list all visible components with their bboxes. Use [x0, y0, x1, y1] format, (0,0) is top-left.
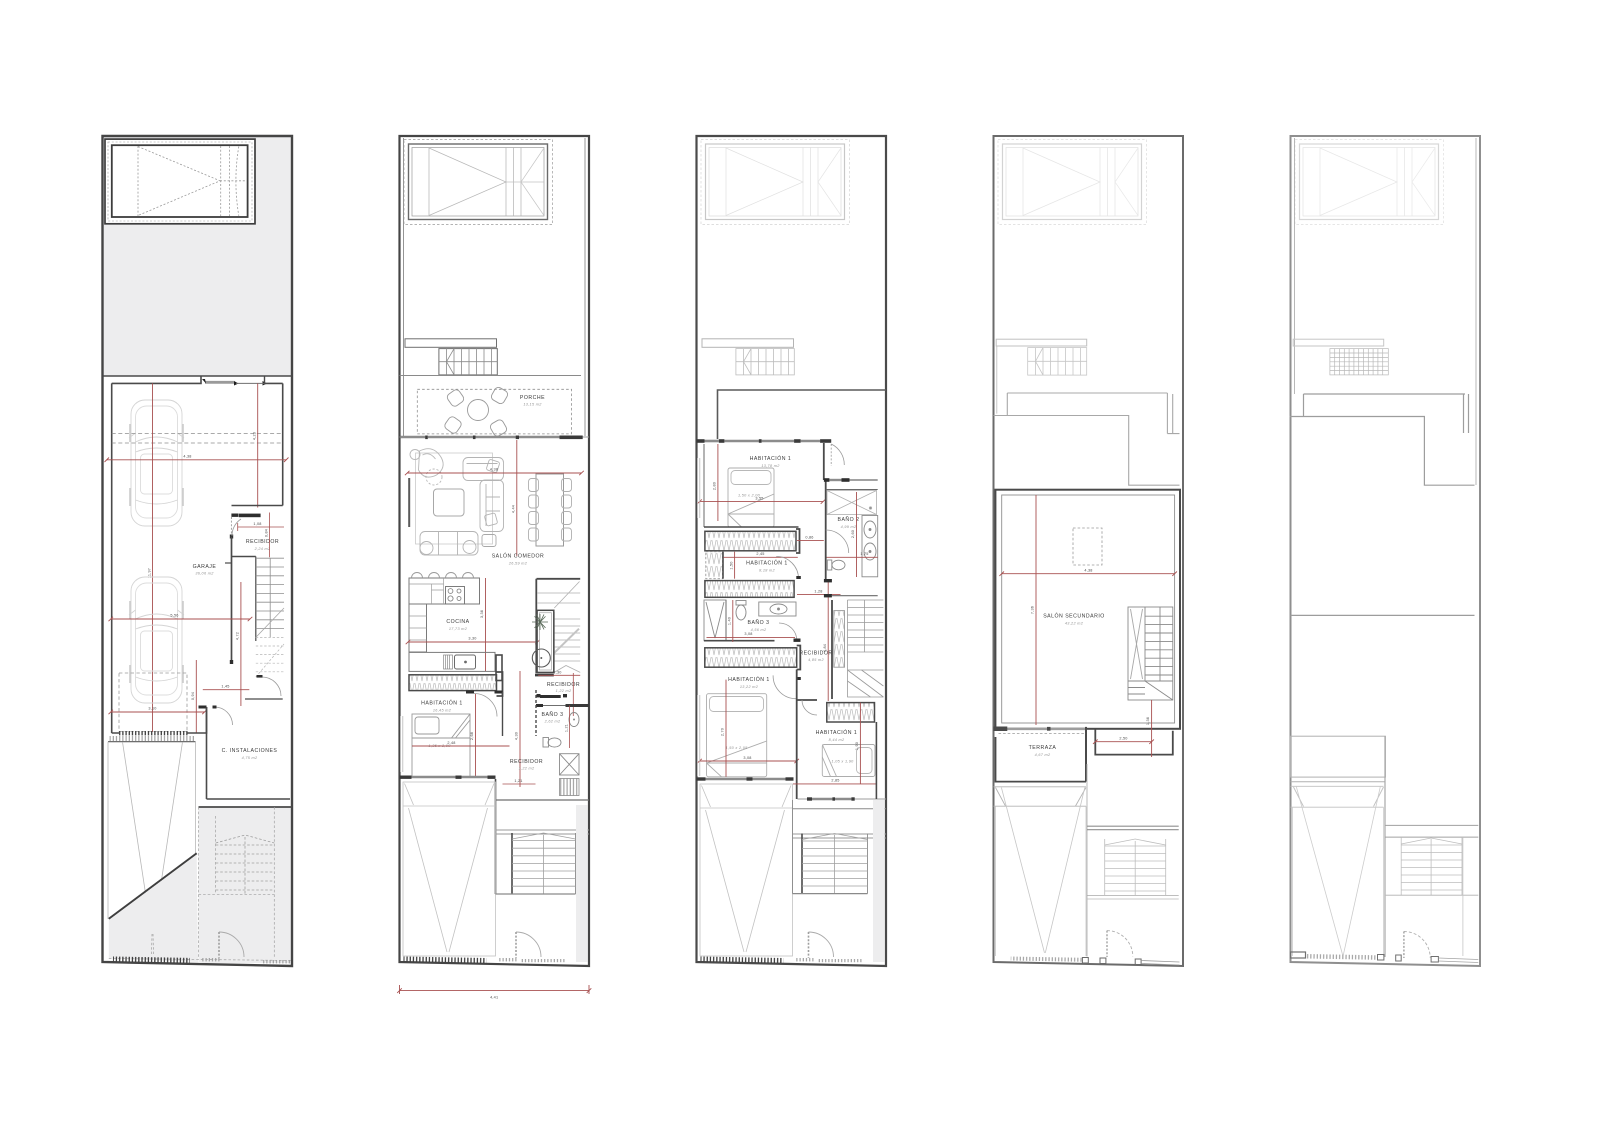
- svg-text:RECIBIDOR: RECIBIDOR: [510, 759, 543, 765]
- svg-text:4,30: 4,30: [515, 732, 519, 740]
- svg-text:2,24 m2: 2,24 m2: [254, 547, 271, 551]
- svg-text:1,40: 1,40: [727, 617, 731, 625]
- svg-text:HABITACIÓN 1: HABITACIÓN 1: [728, 676, 770, 683]
- svg-text:1,28: 1,28: [814, 589, 822, 593]
- svg-text:2,45: 2,45: [756, 552, 764, 556]
- svg-text:13,15 m2: 13,15 m2: [523, 403, 542, 407]
- svg-text:2,85: 2,85: [831, 779, 839, 783]
- svg-text:26,59 m2: 26,59 m2: [508, 562, 528, 566]
- svg-text:RECIBIDOR: RECIBIDOR: [246, 539, 279, 545]
- svg-text:43,22 m2: 43,22 m2: [1065, 622, 1084, 626]
- svg-text:4,44: 4,44: [511, 505, 515, 513]
- svg-text:3,30: 3,30: [468, 637, 476, 641]
- svg-text:2,48: 2,48: [447, 741, 455, 745]
- svg-text:PORCHE: PORCHE: [520, 395, 545, 401]
- svg-text:5,56: 5,56: [170, 614, 178, 618]
- svg-text:SALÓN COMEDOR: SALÓN COMEDOR: [492, 553, 545, 560]
- svg-text:4,67 m2: 4,67 m2: [1035, 753, 1051, 757]
- svg-text:1,05 x 1,90: 1,05 x 1,90: [831, 760, 854, 764]
- svg-text:HABITACIÓN 1: HABITACIÓN 1: [816, 729, 858, 736]
- svg-text:2,70: 2,70: [721, 728, 725, 736]
- svg-text:BAÑO 3: BAÑO 3: [747, 619, 769, 626]
- svg-text:1,08: 1,08: [253, 522, 261, 526]
- svg-text:COCINA: COCINA: [446, 619, 469, 625]
- svg-text:1,36: 1,36: [1146, 717, 1150, 725]
- svg-text:4,56 m2: 4,56 m2: [751, 628, 767, 632]
- svg-text:2,68: 2,68: [470, 732, 474, 740]
- svg-text:4,99 m2: 4,99 m2: [841, 525, 857, 529]
- svg-text:4,84: 4,84: [823, 644, 827, 652]
- svg-text:1,22 m2: 1,22 m2: [556, 689, 572, 693]
- svg-text:1,21: 1,21: [565, 724, 569, 732]
- svg-text:HABITACIÓN 1: HABITACIÓN 1: [421, 700, 463, 707]
- svg-text:4,41: 4,41: [490, 996, 498, 1000]
- svg-text:3,08: 3,08: [744, 632, 752, 636]
- svg-text:8,44 m2: 8,44 m2: [829, 738, 845, 742]
- svg-text:7,36: 7,36: [1031, 606, 1035, 614]
- svg-text:2,62 m2: 2,62 m2: [544, 720, 561, 724]
- svg-text:GARAJE: GARAJE: [193, 564, 217, 570]
- svg-text:1,30: 1,30: [553, 671, 561, 675]
- svg-text:0,84: 0,84: [264, 529, 268, 537]
- svg-text:4,38: 4,38: [183, 455, 191, 459]
- svg-text:4,75 m2: 4,75 m2: [242, 756, 258, 760]
- svg-text:3,36: 3,36: [480, 610, 484, 618]
- svg-text:1,90: 1,90: [855, 742, 859, 750]
- svg-text:0,86: 0,86: [805, 535, 813, 539]
- svg-text:C. INSTALACIONES: C. INSTALACIONES: [222, 748, 278, 754]
- svg-text:1,22 m2: 1,22 m2: [519, 767, 535, 771]
- svg-text:3,08: 3,08: [743, 756, 751, 760]
- svg-text:2,50: 2,50: [1119, 737, 1127, 741]
- svg-text:2,60: 2,60: [851, 530, 855, 538]
- svg-text:BAÑO 3: BAÑO 3: [541, 711, 563, 718]
- svg-text:3,10: 3,10: [148, 707, 156, 711]
- svg-text:HABITACIÓN 1: HABITACIÓN 1: [746, 560, 788, 567]
- svg-text:1,45: 1,45: [221, 685, 229, 689]
- svg-text:3,55: 3,55: [755, 496, 763, 500]
- svg-text:SALÓN SECUNDARIO: SALÓN SECUNDARIO: [1043, 613, 1105, 620]
- svg-text:1,50: 1,50: [729, 561, 733, 569]
- svg-text:HABITACIÓN 1: HABITACIÓN 1: [750, 455, 792, 462]
- svg-text:0,94: 0,94: [191, 692, 195, 700]
- svg-text:13,78 m2: 13,78 m2: [761, 464, 780, 468]
- svg-text:4,38: 4,38: [1084, 569, 1092, 573]
- svg-text:16,45 m2: 16,45 m2: [433, 709, 452, 713]
- svg-text:RECIBIDOR: RECIBIDOR: [799, 651, 832, 657]
- svg-text:2,80: 2,80: [713, 482, 717, 490]
- svg-text:4,72: 4,72: [236, 632, 240, 640]
- svg-text:13,22 m2: 13,22 m2: [740, 685, 759, 689]
- svg-text:TERRAZA: TERRAZA: [1029, 745, 1057, 751]
- svg-text:1,50 x 2,05: 1,50 x 2,05: [725, 746, 748, 750]
- svg-text:4,38: 4,38: [490, 468, 498, 472]
- svg-text:4,85 m2: 4,85 m2: [808, 658, 824, 662]
- svg-text:17,73 m2: 17,73 m2: [449, 627, 468, 631]
- svg-text:1,75: 1,75: [860, 552, 868, 556]
- svg-text:RECIBIDOR: RECIBIDOR: [547, 682, 580, 688]
- svg-text:8,18 m2: 8,18 m2: [759, 569, 775, 573]
- svg-text:1,21: 1,21: [514, 779, 522, 783]
- svg-text:4,23: 4,23: [253, 432, 257, 440]
- svg-text:36,06 m2: 36,06 m2: [195, 572, 214, 576]
